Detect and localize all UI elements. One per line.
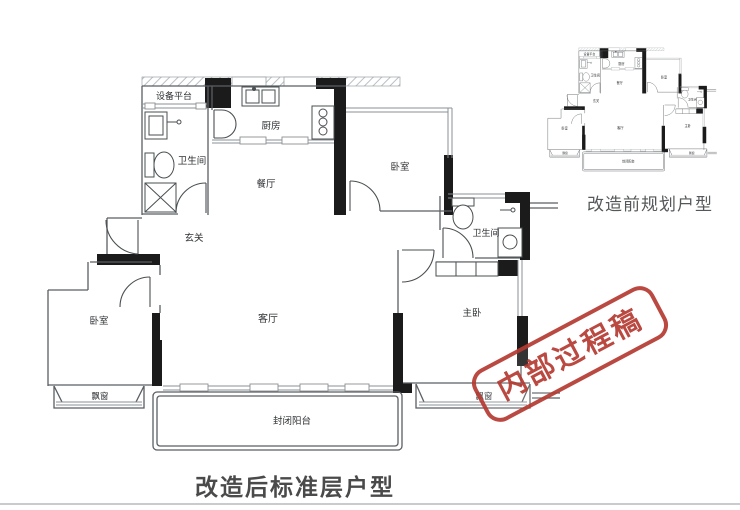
fixtures	[145, 87, 522, 276]
caption-before-plan: 改造前规划户型	[570, 190, 730, 215]
caption-after-plan: 改造后标准层户型	[170, 468, 420, 502]
corridor-hatch-band	[142, 77, 400, 86]
room-label-living: 客厅	[258, 312, 278, 325]
stove-icon	[312, 106, 334, 139]
room-label-kitchen: 厨房	[261, 120, 280, 132]
wardrobe-icon	[436, 262, 498, 276]
kitchen-window	[284, 77, 318, 86]
toilet-tank	[145, 153, 154, 177]
floorplan-svg: 设备平台 卫生间 厨房 餐厅 玄关 卧室 卫生间 客厅 卧室 主卧 飘窗 飘窗 …	[0, 0, 740, 510]
room-label-master-bedroom: 主卧	[462, 307, 482, 319]
small-floor-plan-before	[548, 48, 717, 171]
room-label-bathroom-left: 卫生间	[178, 155, 207, 167]
kitchen-window	[232, 77, 266, 86]
room-label-balcony: 封闭阳台	[273, 415, 311, 427]
floorplan-canvas: 设备平台 卫生间 厨房 餐厅 玄关 卧室 卫生间 客厅 卧室 主卧 飘窗 飘窗 …	[0, 0, 740, 510]
sink-right-bath	[498, 228, 522, 257]
room-label-bedroom-left: 卧室	[89, 315, 108, 327]
room-label-foyer: 玄关	[184, 232, 204, 244]
bottom-divider	[0, 503, 740, 505]
room-label-bedroom-top: 卧室	[390, 161, 409, 173]
room-label-bathroom-right: 卫生间	[472, 227, 499, 239]
room-label-equipment-platform: 设备平台	[156, 90, 192, 102]
toilet-icon	[154, 152, 174, 178]
toilet-icon-right	[453, 205, 473, 229]
room-label-bay-window-left: 飘窗	[91, 391, 108, 402]
room-label-dining: 餐厅	[256, 178, 276, 190]
